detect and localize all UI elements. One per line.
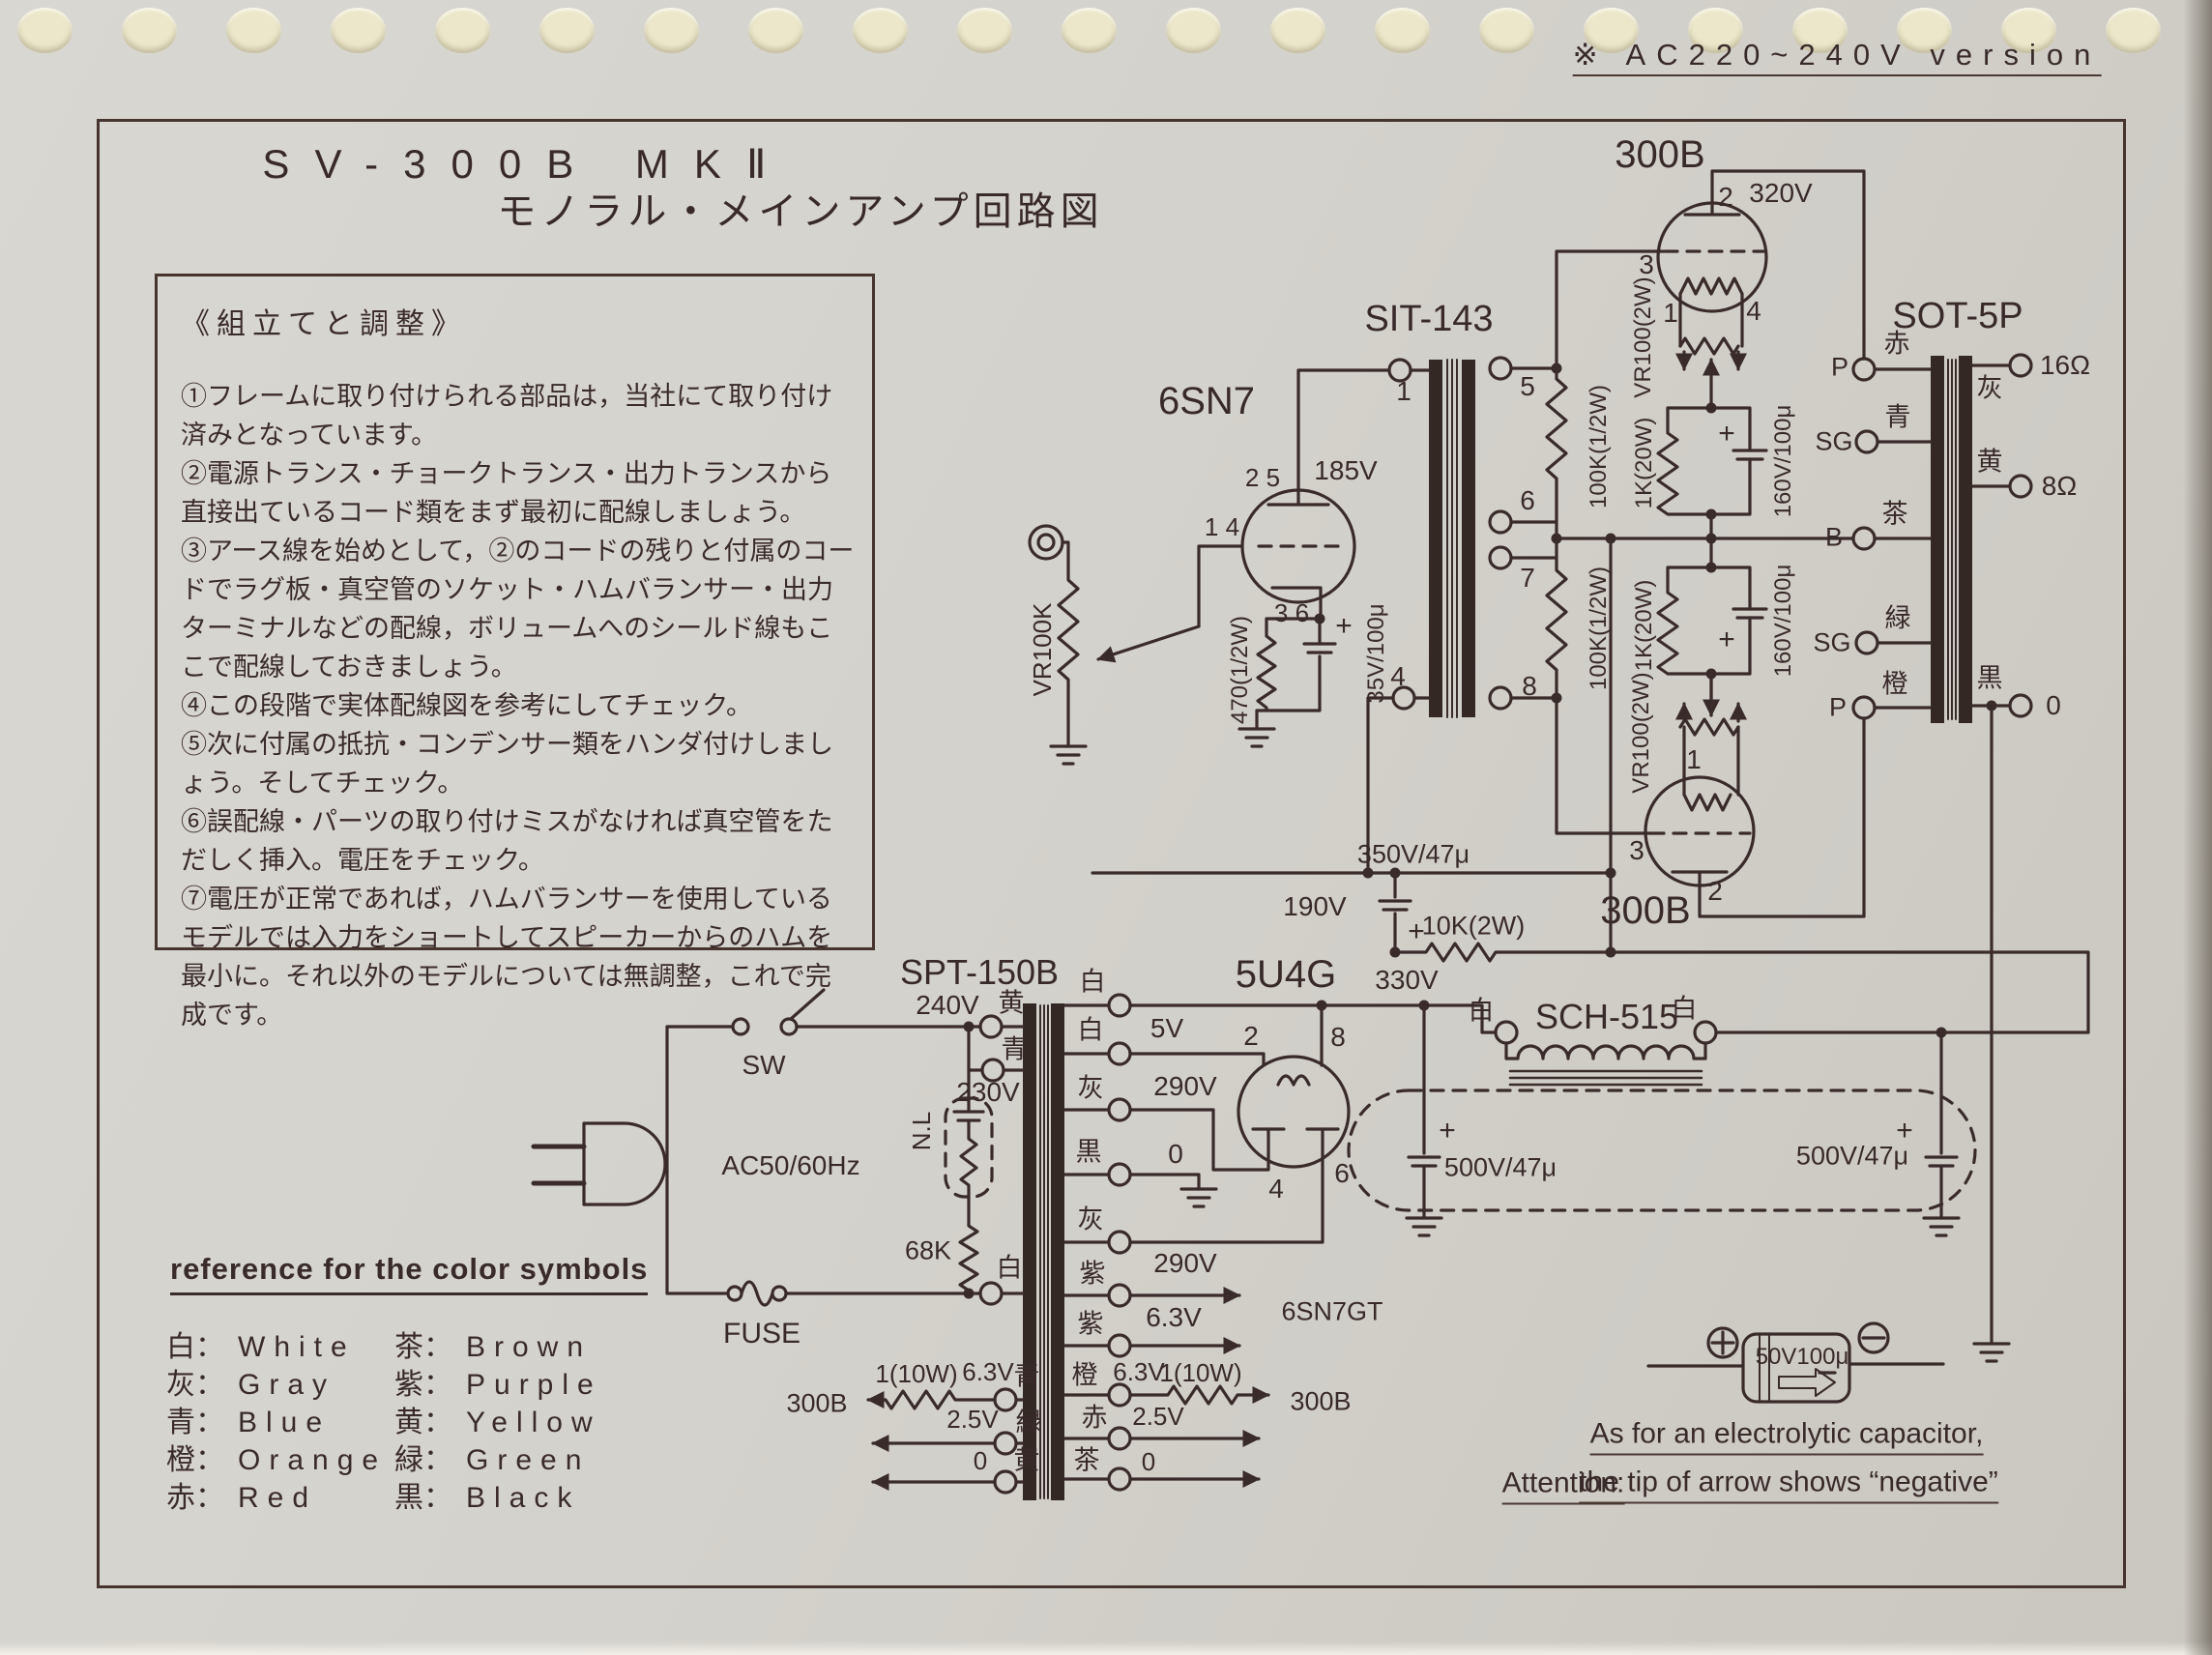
s-white2: 白 <box>1078 1018 1104 1044</box>
hl-v25: 2.5V <box>946 1407 999 1432</box>
capacitor-value: 50V100μ <box>1756 1346 1849 1369</box>
bias-network-bottom <box>1658 538 1766 715</box>
plus-160-bot: + <box>1718 625 1735 654</box>
ohm16-label: 16Ω <box>2040 352 2090 379</box>
sit143-label: SIT-143 <box>1364 301 1493 337</box>
p-white: 白 <box>997 1256 1023 1282</box>
sot-brown: 茶 <box>1882 502 1908 528</box>
interstage-transformer-sit143 <box>1368 251 1663 873</box>
heater-windings <box>868 1295 1268 1482</box>
v290a-label: 290V <box>1153 1073 1216 1100</box>
power-transformer-spt150b <box>980 995 1130 1500</box>
color-row: 黒Black <box>394 1473 580 1511</box>
hl-green: 緑 <box>1016 1410 1042 1437</box>
dest-6sn7gt: 6SN7GT <box>1281 1299 1382 1325</box>
sit-pin4: 4 <box>1390 663 1406 690</box>
ohm8-label: 8Ω <box>2042 473 2078 500</box>
sot5p-label: SOT-5P <box>1892 298 2023 334</box>
sot-black: 黒 <box>1977 666 2003 692</box>
h-purple1: 紫 <box>1080 1262 1106 1288</box>
hl-blue: 青 <box>1014 1364 1040 1390</box>
b300-pin3: 3 <box>1629 837 1644 864</box>
color-row: 青Blue <box>166 1398 331 1436</box>
hr-v63: 6.3V <box>1113 1359 1165 1384</box>
hum-balancer-bottom <box>1680 704 1738 735</box>
sot-p1-label: P <box>1831 355 1848 381</box>
t300-pin4: 4 <box>1746 298 1761 325</box>
color-row: 黄Yellow <box>394 1398 601 1436</box>
v63-label: 6.3V <box>1146 1304 1202 1331</box>
sot-orange: 橙 <box>1882 672 1908 698</box>
fuse-label: FUSE <box>723 1320 800 1349</box>
vr100k-label: VR100K <box>1030 603 1055 697</box>
hl-v63: 6.3V <box>962 1359 1014 1384</box>
color-row: 橙Orange <box>166 1436 387 1473</box>
r1k-bot-label: 1K(20W) <box>1633 580 1656 672</box>
v5-label: 5V <box>1150 1015 1183 1042</box>
plus-35v: + <box>1335 612 1353 641</box>
nl-label: N.L <box>909 1112 934 1150</box>
t300-pin3: 3 <box>1639 251 1654 278</box>
power-plug <box>534 1123 667 1205</box>
p-blue: 青 <box>1002 1037 1028 1063</box>
u5-pin8: 8 <box>1330 1024 1346 1051</box>
v290b-label: 290V <box>1153 1250 1216 1277</box>
sot-red: 赤 <box>1884 332 1910 358</box>
b300-pin2: 2 <box>1707 878 1723 905</box>
v185-label: 185V <box>1314 457 1377 484</box>
v230-label: 230V <box>956 1079 1019 1106</box>
v190-label: 190V <box>1283 893 1346 920</box>
hl-r-label: 1(10W) <box>875 1361 957 1386</box>
vr100-top-label: VR100(2W) <box>1632 276 1655 397</box>
s-black: 黒 <box>1076 1140 1102 1166</box>
tube-300b-top-label: 300B <box>1615 135 1704 174</box>
bias-network-top <box>1658 403 1766 539</box>
capacitor-note-line1: As for an electrolytic capacitor, <box>1590 1420 1984 1456</box>
u5-pin4: 4 <box>1268 1176 1284 1203</box>
color-row: 灰Gray <box>166 1360 335 1398</box>
v320-label: 320V <box>1749 180 1812 207</box>
sot-sg1-label: SG <box>1815 429 1852 455</box>
u5-pin6: 6 <box>1334 1160 1350 1187</box>
color-row: 赤Red <box>166 1473 317 1511</box>
r1k-top-label: 1K(20W) <box>1633 418 1656 509</box>
sot-sg2-label: SG <box>1813 630 1850 656</box>
c500-a-label: 500V/47μ <box>1444 1155 1557 1181</box>
choke-white-left: 白 <box>1469 999 1495 1025</box>
plus-500a: + <box>1439 1117 1456 1146</box>
hl-yellow: 黄 <box>1014 1448 1040 1474</box>
sit-pin6: 6 <box>1520 487 1535 514</box>
color-row: 白White <box>166 1322 356 1360</box>
t300-pin1: 1 <box>1663 300 1678 327</box>
s-gray1: 灰 <box>1078 1076 1104 1102</box>
hr-zero: 0 <box>1142 1449 1155 1474</box>
hum-balancer-top <box>1680 338 1738 406</box>
dest-300b-left: 300B <box>786 1391 847 1417</box>
sot-p2-label: P <box>1829 695 1847 721</box>
hr-red: 赤 <box>1082 1406 1108 1432</box>
c35-label: 35V/100μ <box>1365 603 1388 703</box>
sit-pin7: 7 <box>1520 565 1535 592</box>
color-reference-title: reference for the color symbols <box>170 1252 648 1295</box>
hr-brown: 茶 <box>1074 1448 1100 1474</box>
out0-label: 0 <box>2046 692 2061 719</box>
r100k-a-label: 100K(1/2W) <box>1587 385 1611 508</box>
sot-gray: 灰 <box>1977 376 2003 402</box>
hr-r-label: 1(10W) <box>1159 1360 1241 1385</box>
s-white1: 白 <box>1080 970 1106 996</box>
capacitor-note-line2: the tip of arrow shows “negative” <box>1579 1468 1998 1504</box>
s-gray2: 灰 <box>1078 1207 1104 1234</box>
scanned-page: ※ AC220~240V version SV-300B MKⅡ モノラル・メイ… <box>0 0 2212 1655</box>
tube-6sn7-label: 6SN7 <box>1158 382 1255 421</box>
plus-160-top: + <box>1718 420 1735 449</box>
ac-label: AC50/60Hz <box>721 1152 859 1179</box>
s-zero: 0 <box>1168 1141 1183 1168</box>
tube-5u4g-label: 5U4G <box>1236 955 1337 994</box>
color-row: 茶Brown <box>394 1322 592 1360</box>
sch515-label: SCH-515 <box>1535 1000 1678 1034</box>
c500-b-label: 500V/47μ <box>1796 1144 1908 1170</box>
color-row: 緑Green <box>394 1436 590 1473</box>
volume-pot-vr100k <box>1051 542 1242 764</box>
hr-v25: 2.5V <box>1132 1404 1184 1429</box>
v330-label: 330V <box>1375 967 1438 994</box>
sit-pin1: 1 <box>1396 378 1412 405</box>
hl-zero: 0 <box>974 1448 987 1473</box>
sot-green: 緑 <box>1885 606 1911 632</box>
b300-pin1: 1 <box>1686 746 1702 773</box>
vr100-bot-label: VR100(2W) <box>1630 672 1653 793</box>
sot-yellow: 黄 <box>1977 450 2003 476</box>
input-jack <box>1030 526 1062 559</box>
c350-label: 350V/47μ <box>1357 842 1470 868</box>
r68k-label: 68K <box>905 1238 951 1264</box>
sot-b-label: B <box>1825 525 1843 551</box>
output-tube-300b-bottom <box>1645 718 1864 916</box>
tube-300b-bottom-label: 300B <box>1600 891 1690 930</box>
c160-top-label: 160V/100μ <box>1772 405 1795 518</box>
t300-pin2: 2 <box>1718 184 1733 211</box>
color-row: 紫Purple <box>394 1360 602 1398</box>
pins-1-4: 1 4 <box>1205 514 1239 539</box>
h-purple2: 紫 <box>1078 1312 1104 1338</box>
choke-white-right: 白 <box>1672 997 1698 1023</box>
r100k-b-label: 100K(1/2W) <box>1587 566 1611 690</box>
sw-label: SW <box>742 1052 785 1079</box>
sit-pin8: 8 <box>1522 673 1537 700</box>
r470-label: 470(1/2W) <box>1229 616 1252 724</box>
pins-2-5: 2 5 <box>1245 465 1280 490</box>
v240-label: 240V <box>916 992 978 1019</box>
sit-pin5: 5 <box>1520 373 1535 400</box>
spt150b-label: SPT-150B <box>900 955 1059 990</box>
hr-orange: 橙 <box>1072 1363 1098 1389</box>
pins-3-6: 3 6 <box>1274 600 1309 625</box>
u5-pin2: 2 <box>1243 1023 1259 1050</box>
c160-bot-label: 160V/100μ <box>1772 565 1795 678</box>
sot-blue: 青 <box>1885 405 1911 431</box>
r10k-label: 10K(2W) <box>1422 914 1526 940</box>
p-yellow: 黄 <box>999 991 1025 1017</box>
dest-300b-right: 300B <box>1290 1389 1351 1415</box>
